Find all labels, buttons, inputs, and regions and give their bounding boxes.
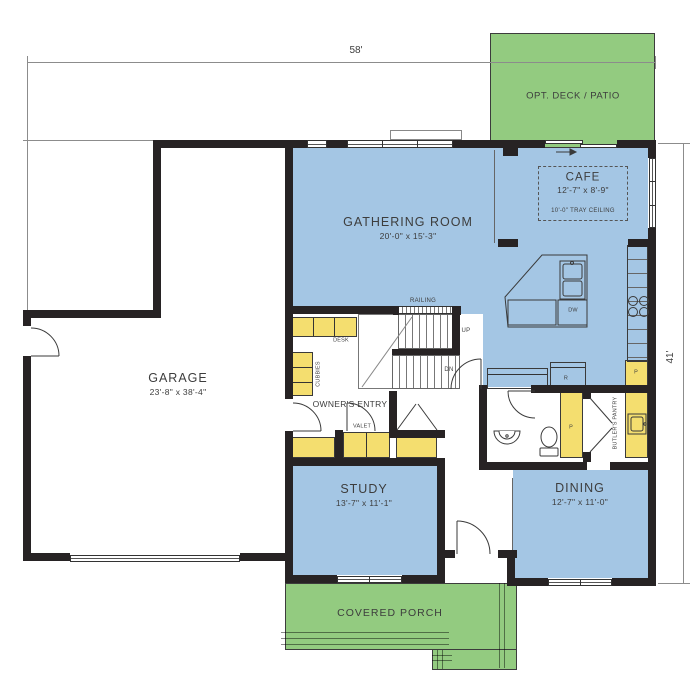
dishwasher-label: DW — [568, 308, 578, 314]
gathering-room-label: GATHERING ROOM — [343, 216, 473, 229]
owners-entry-label: OWNER'S ENTRY — [313, 400, 388, 409]
desk-label: DESK — [333, 338, 349, 344]
cafe-size: 12'-7" x 8'-9" — [557, 186, 609, 195]
depth-dimension-label: 41' — [666, 350, 676, 363]
valet-label: VALET — [353, 424, 371, 430]
stairs-down-label: DN — [444, 367, 453, 373]
garage-label: GARAGE — [148, 372, 208, 385]
double-door — [397, 404, 437, 430]
kitchen-island — [505, 255, 587, 327]
door-swing — [508, 391, 535, 418]
garage-size: 23'-8" x 38'-4" — [150, 388, 207, 397]
sink-icon — [628, 414, 646, 434]
floor-plan: 58' 41' OPT. DECK / PATIO COVERED PORCH … — [0, 0, 700, 700]
width-dimension-label: 58' — [346, 46, 365, 56]
refrigerator-label: R — [564, 376, 568, 382]
cafe-tray-ceiling-note: 10'-0" TRAY CEILING — [551, 208, 615, 214]
slider-arrow — [556, 149, 576, 155]
cooktop-icon — [629, 297, 649, 317]
butlers-pantry-label: BUTLER'S PANTRY — [613, 397, 619, 450]
dining-size: 12'-7" x 11'-0" — [552, 498, 608, 507]
stair-break-line — [362, 317, 412, 387]
fixtures-overlay — [0, 0, 700, 700]
stairs-up-label: UP — [462, 328, 471, 334]
door-swing — [457, 521, 490, 554]
pantry-label: P — [569, 425, 573, 431]
cafe-label: CAFE — [566, 172, 601, 184]
railing-label: RAILING — [410, 298, 436, 304]
double-door — [590, 398, 612, 452]
door-swing — [451, 359, 481, 389]
gathering-room-size: 20'-0" x 15'-3" — [380, 232, 437, 241]
study-size: 13'-7" x 11'-1" — [336, 499, 392, 508]
door-swing — [31, 328, 59, 356]
pantry-label-2: P — [634, 370, 638, 376]
cubbies-label: CUBBIES — [316, 361, 322, 387]
dining-label: DINING — [555, 482, 605, 495]
deck-patio-label: OPT. DECK / PATIO — [526, 91, 620, 101]
toilet-icon — [540, 427, 558, 456]
sink-icon — [494, 431, 520, 444]
study-label: STUDY — [340, 483, 387, 496]
covered-porch-label: COVERED PORCH — [337, 608, 443, 619]
